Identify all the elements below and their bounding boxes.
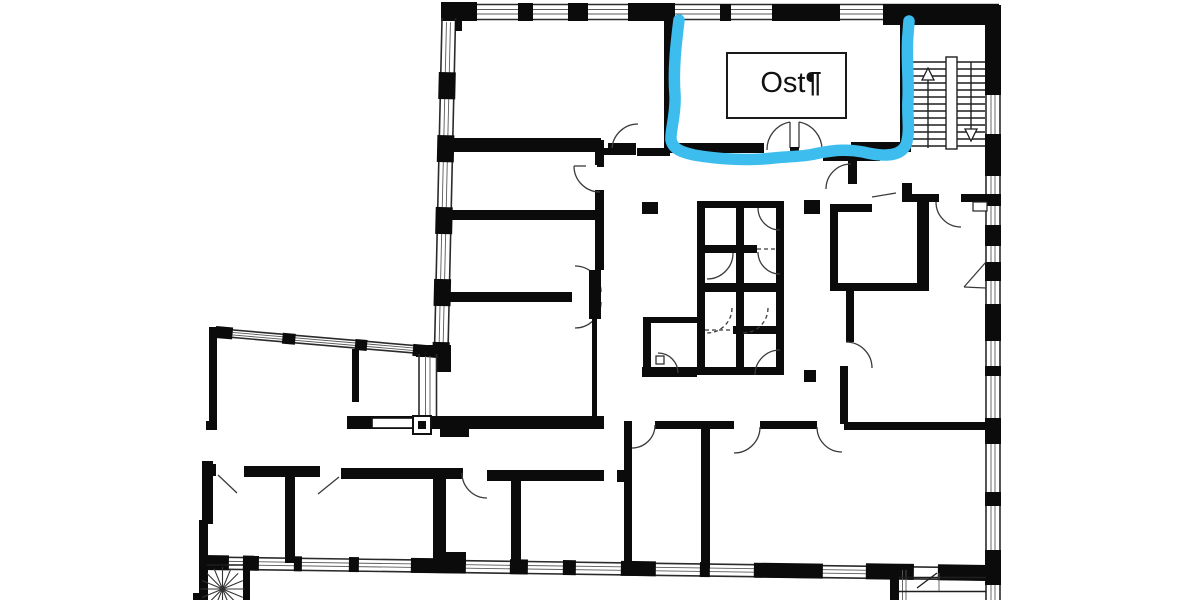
- svg-text:Ost¶: Ost¶: [760, 67, 821, 99]
